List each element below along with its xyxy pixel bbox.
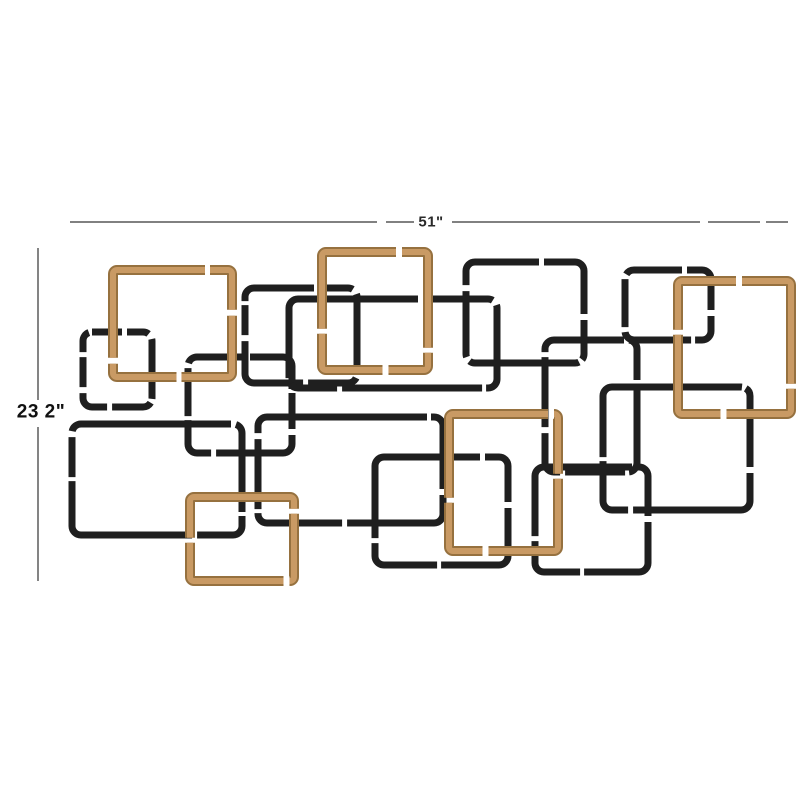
art-square-gold — [678, 281, 791, 414]
art-square-black — [258, 417, 443, 523]
art-square-gold-highlight — [322, 252, 428, 370]
art-square-black — [535, 467, 648, 572]
wall-art-svg — [0, 0, 800, 800]
width-dimension-label: 51" — [415, 215, 446, 230]
art-square-gold-highlight — [678, 281, 791, 414]
art-square-gold — [322, 252, 428, 370]
height-dimension-label: 23 2" — [14, 403, 69, 422]
art-square-gold — [113, 270, 232, 377]
art-square-black — [72, 424, 242, 535]
product-dimension-image: 51" 23 2" — [0, 0, 800, 800]
art-square-gold-highlight — [113, 270, 232, 377]
art-square-black — [466, 262, 584, 363]
